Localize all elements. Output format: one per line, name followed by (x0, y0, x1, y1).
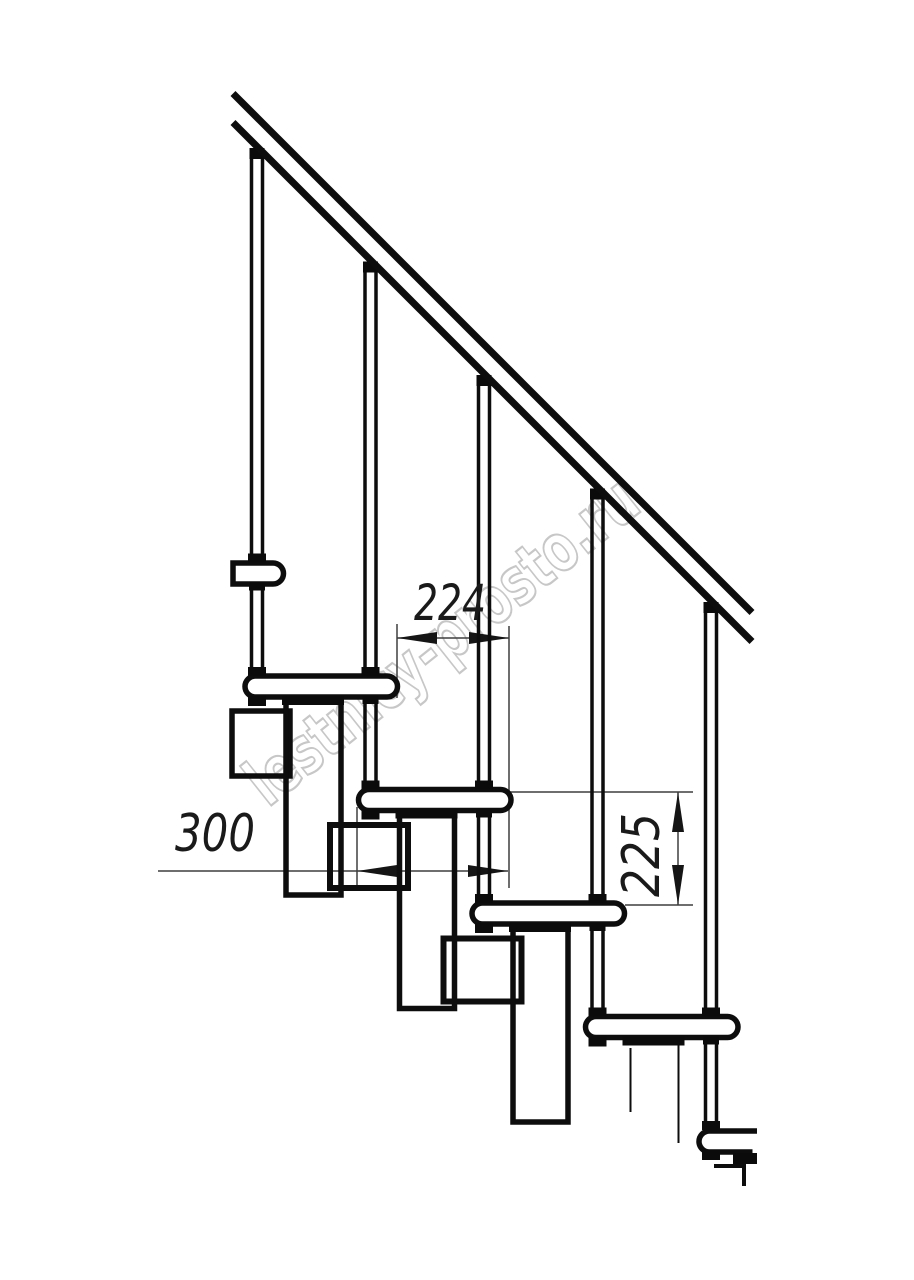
tread-1-fragment (233, 563, 284, 584)
baluster-4 (592, 499, 603, 1019)
module-pipe-6-cut (714, 1166, 744, 1186)
baluster-1 (252, 158, 263, 678)
tread-4 (472, 903, 625, 924)
tread-3 (359, 790, 512, 811)
arrow-rise-down (672, 865, 684, 905)
handrail-top-edge (233, 94, 752, 613)
flange-5 (623, 1037, 685, 1046)
baluster-5 (706, 612, 717, 1132)
tread-2 (245, 676, 398, 697)
dim-label-rise: 225 (612, 813, 672, 897)
flange-3 (396, 810, 458, 819)
flange-6-fragment (733, 1153, 757, 1164)
arrow-depth-left (357, 865, 397, 877)
dim-label-run: 224 (414, 574, 486, 632)
arrow-rise-up (672, 792, 684, 832)
staircase-drawing: lestnicy-prosto.ru (0, 0, 914, 1280)
fittings (248, 148, 757, 1164)
tread-5 (586, 1017, 739, 1038)
dim-label-depth: 300 (175, 804, 255, 864)
flange-2 (282, 696, 344, 705)
flange-4 (509, 923, 571, 932)
watermark-text: lestnicy-prosto.ru (230, 461, 654, 820)
dimension-labels: 224 300 225 (175, 574, 672, 897)
tread-6-fragment (699, 1131, 757, 1152)
